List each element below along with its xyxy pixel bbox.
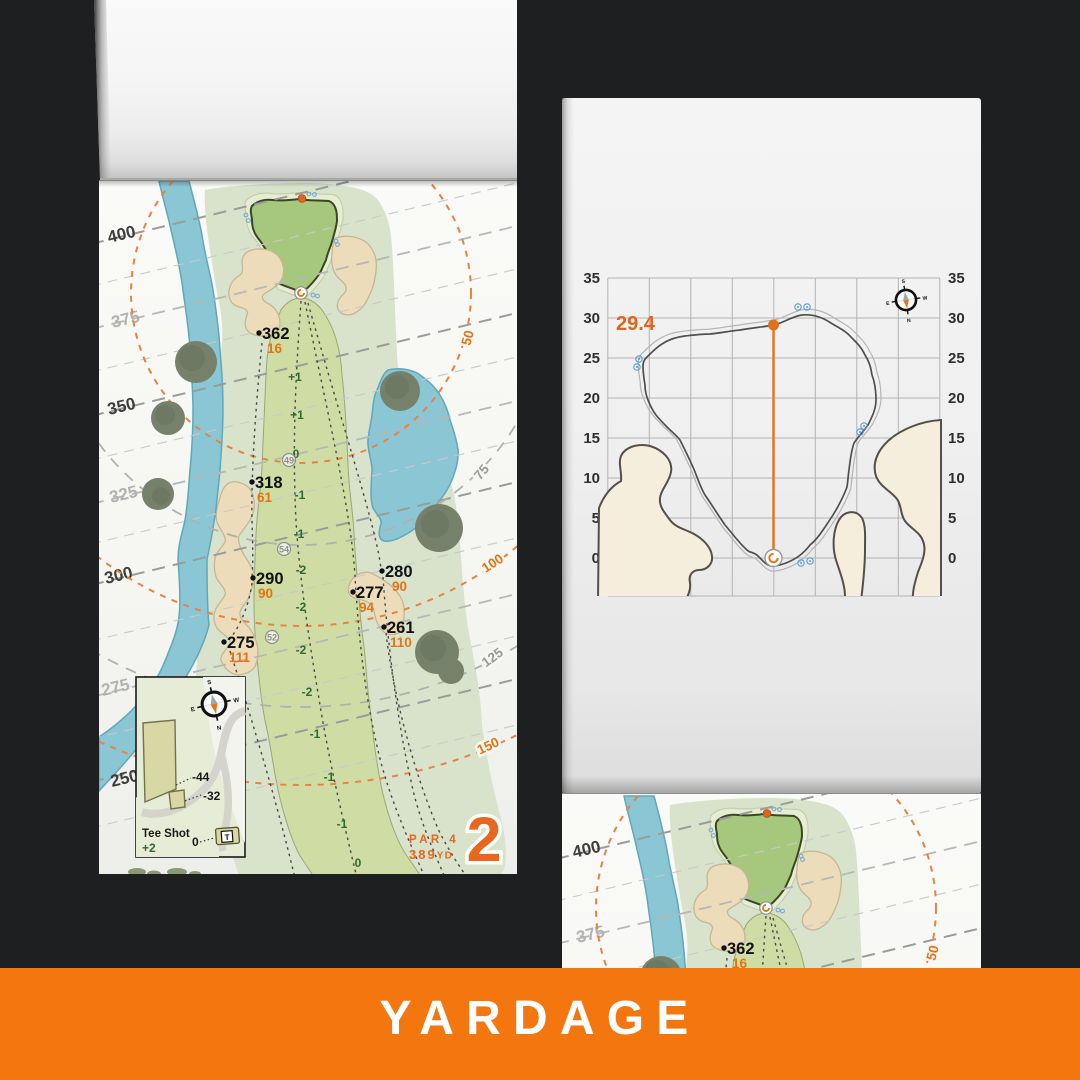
svg-text:15: 15 [583, 430, 600, 447]
svg-text:0: 0 [948, 550, 956, 567]
svg-text:15: 15 [948, 430, 965, 447]
svg-text:29.4: 29.4 [616, 313, 656, 335]
svg-text:10: 10 [583, 470, 600, 487]
svg-text:10: 10 [948, 470, 965, 487]
svg-text:20: 20 [583, 390, 600, 407]
svg-text:25: 25 [583, 350, 600, 367]
svg-text:YARDAGE: YARDAGE [379, 992, 700, 1045]
svg-text:20: 20 [948, 390, 965, 407]
svg-text:35: 35 [583, 270, 600, 287]
svg-text:30: 30 [948, 310, 965, 327]
svg-text:25: 25 [948, 350, 965, 367]
svg-text:35: 35 [948, 270, 965, 287]
svg-text:30: 30 [583, 310, 600, 327]
svg-text:5: 5 [948, 510, 956, 527]
